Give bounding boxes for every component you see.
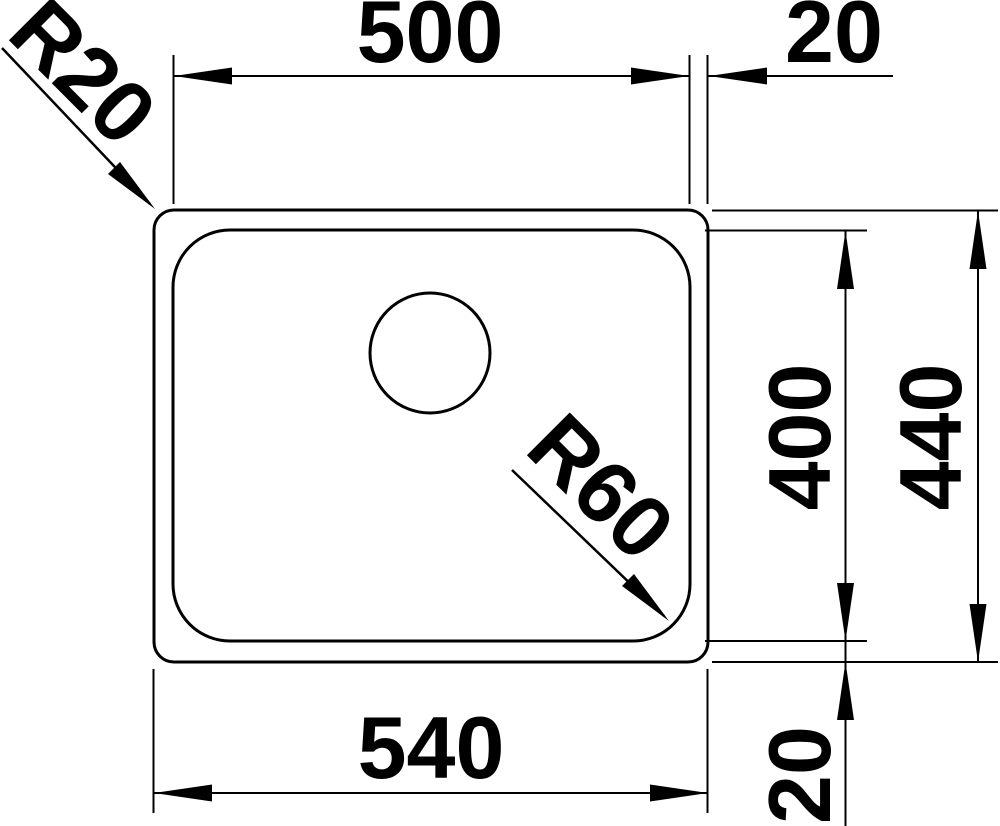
dim-inner-width: 500 xyxy=(174,0,690,204)
arrowhead-left-icon xyxy=(154,785,212,802)
arrowhead-left-icon xyxy=(174,68,232,85)
sink-dimension-drawing: 500 20 R20 R60 400 xyxy=(0,0,1000,826)
arrowhead-left-icon xyxy=(709,68,767,85)
dim-label-rim-offset-bottom: 20 xyxy=(750,726,849,824)
arrowhead-down-icon xyxy=(837,583,854,641)
arrowhead-icon xyxy=(622,574,669,621)
arrowhead-icon xyxy=(108,162,155,209)
dim-label-outer-depth: 440 xyxy=(881,364,980,511)
dim-label-outer-width: 540 xyxy=(358,698,505,797)
arrowhead-right-icon xyxy=(650,785,708,802)
dim-label-outer-corner-radius: R20 xyxy=(0,0,175,164)
leader-outer-corner-radius: R20 xyxy=(0,0,175,209)
dim-label-inner-depth: 400 xyxy=(750,364,849,511)
dim-label-inner-width: 500 xyxy=(357,0,504,81)
dim-label-rim-offset-top: 20 xyxy=(785,0,883,81)
dim-outer-width: 540 xyxy=(154,669,709,813)
dim-rim-offset-bottom: 20 xyxy=(750,641,854,826)
drawing-canvas: 500 20 R20 R60 400 xyxy=(0,0,1000,826)
arrowhead-up-icon xyxy=(970,211,987,269)
dim-label-inner-corner-radius: R60 xyxy=(509,395,693,579)
arrowhead-right-icon xyxy=(631,68,689,85)
arrowhead-up-icon xyxy=(837,231,854,289)
dim-inner-depth: 400 xyxy=(705,231,867,642)
arrowhead-up-icon xyxy=(837,662,854,720)
leader-inner-corner-radius: R60 xyxy=(509,395,693,621)
arrowhead-down-icon xyxy=(970,604,987,662)
sink-outer-rim xyxy=(154,210,708,662)
drain-hole xyxy=(370,293,490,413)
dim-rim-offset-top: 20 xyxy=(708,0,894,204)
